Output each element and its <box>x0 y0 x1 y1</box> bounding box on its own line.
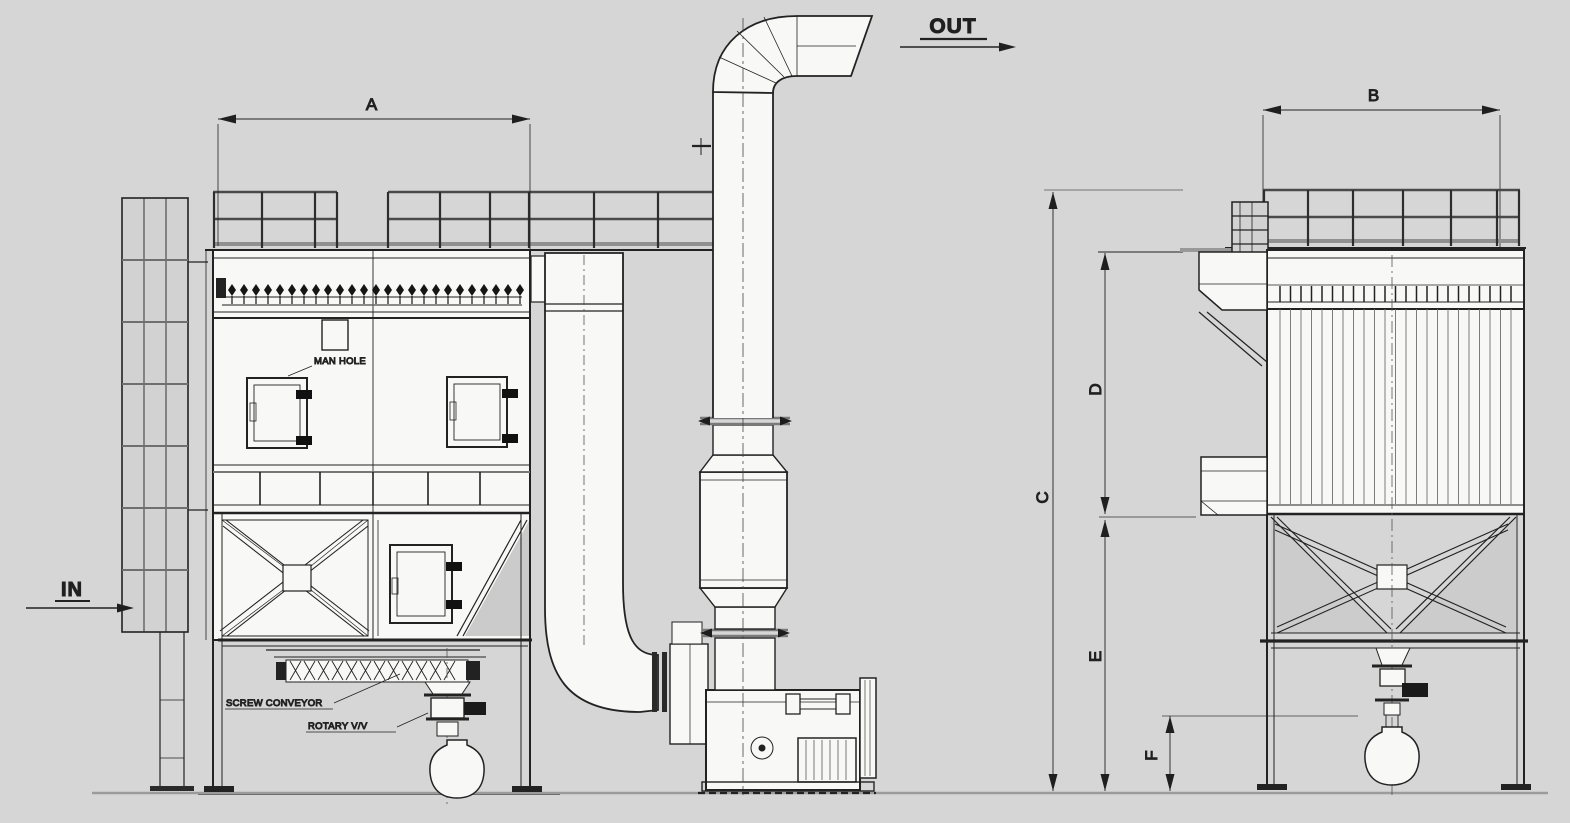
valve-drive-motor <box>1402 683 1428 697</box>
bearing <box>836 694 850 714</box>
dim-d-label: D <box>1086 382 1105 395</box>
fan-outlet-duct <box>700 607 790 690</box>
belt-guard <box>860 678 876 778</box>
dust-drum <box>430 740 484 798</box>
inlet-arrow: IN <box>26 579 134 613</box>
dimension-c: C <box>1033 190 1183 791</box>
drawing-canvas: MAN HOLE <box>0 0 1570 823</box>
stack-port-marker <box>692 138 711 155</box>
bearing <box>786 694 800 714</box>
dimension-a: A <box>218 95 530 252</box>
rotary-valve-leader <box>397 713 428 727</box>
door-hinge <box>446 600 462 609</box>
dim-e-label: E <box>1086 650 1105 662</box>
door-hinge <box>502 389 518 398</box>
door-hinge <box>296 436 312 445</box>
roof-handrail-side <box>1225 190 1526 248</box>
door-hinge <box>502 434 518 443</box>
fan-inlet-joint <box>652 622 708 744</box>
inlet-duct-brackets <box>1199 252 1267 515</box>
dimension-e: E <box>1086 517 1196 791</box>
hopper-door <box>390 545 452 623</box>
screw-conveyor-label: SCREW CONVEYOR <box>226 698 323 709</box>
hopper-center-plate <box>283 565 311 591</box>
dim-c-label: C <box>1033 490 1052 503</box>
outlet-label: OUT <box>929 15 976 38</box>
dim-f-label: F <box>1142 749 1161 760</box>
man-hole-label: MAN HOLE <box>314 356 366 367</box>
dim-a-label: A <box>366 95 378 114</box>
door-hinge <box>446 562 462 571</box>
outlet-arrow: OUT <box>900 15 1016 52</box>
roof-handrail <box>205 192 746 250</box>
fan-motor <box>798 738 856 782</box>
dimension-f: F <box>1142 716 1358 791</box>
ladder-top-side <box>1180 202 1268 258</box>
stack-elbow <box>713 16 872 93</box>
dimension-d: D <box>1086 252 1183 514</box>
exhaust-line: OUT <box>545 15 1016 795</box>
fan-unit <box>698 678 876 793</box>
rotary-valve-label: ROTARY V/V <box>308 721 368 732</box>
access-ladder <box>122 198 208 791</box>
downcomer-duct <box>545 253 658 712</box>
dust-drum-side <box>1365 727 1419 785</box>
dim-b-label: B <box>1368 86 1380 105</box>
side-elevation: C D E F <box>1033 86 1531 795</box>
dust-collector-ga-drawing: MAN HOLE <box>0 0 1570 823</box>
filter-housing-side <box>1254 250 1524 514</box>
silencer <box>700 455 787 607</box>
door-hinge <box>296 390 312 399</box>
inlet-label: IN <box>61 579 83 601</box>
valve-drive-motor <box>464 702 486 715</box>
